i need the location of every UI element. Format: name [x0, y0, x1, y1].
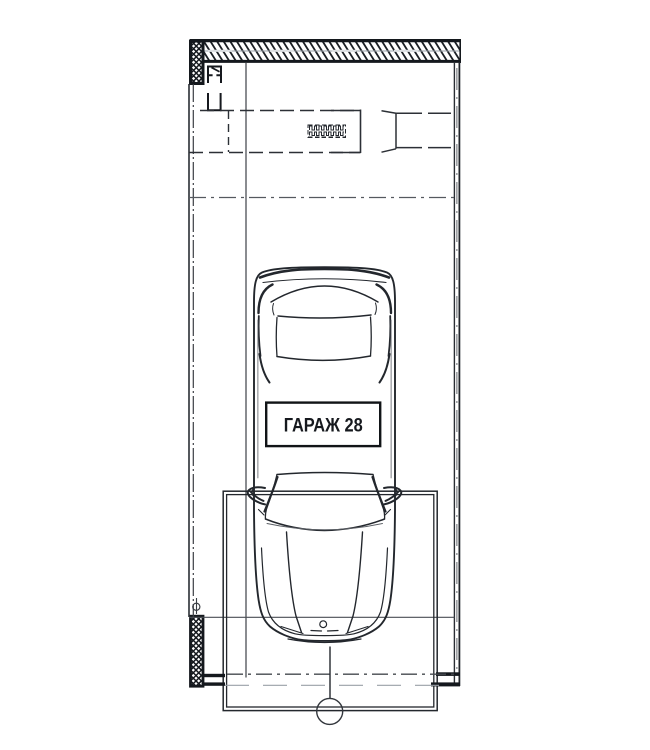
svg-text:ГАРАЖ 28: ГАРАЖ 28: [284, 415, 363, 437]
